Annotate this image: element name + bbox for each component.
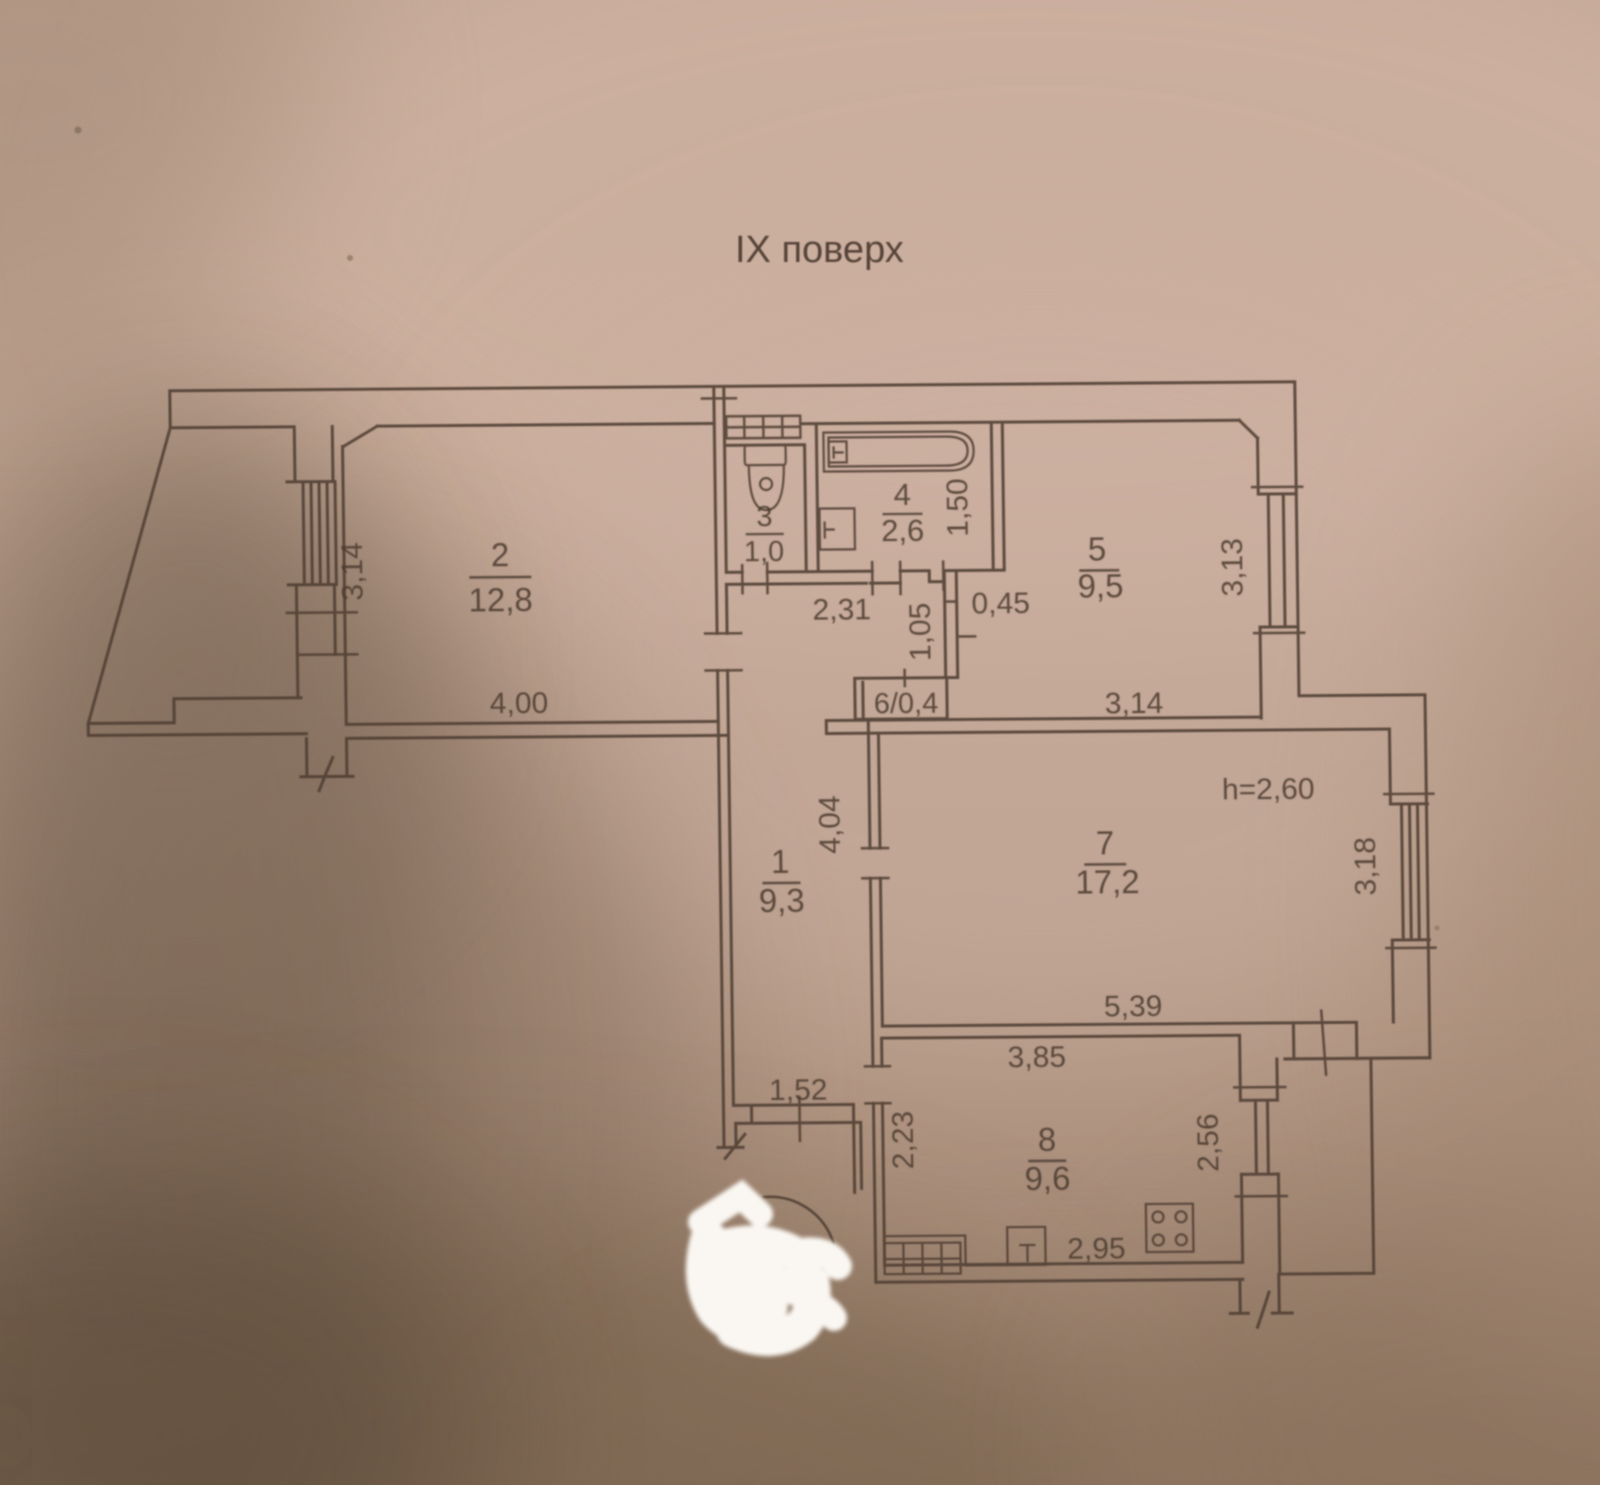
svg-text:0,45: 0,45 [971, 587, 1030, 620]
svg-text:1,52: 1,52 [769, 1074, 828, 1107]
svg-text:17,2: 17,2 [1075, 863, 1140, 901]
svg-text:3,18: 3,18 [1349, 837, 1383, 896]
svg-text:4,00: 4,00 [490, 687, 549, 720]
svg-text:2,23: 2,23 [887, 1111, 921, 1170]
svg-text:3,85: 3,85 [1007, 1041, 1066, 1074]
svg-text:3: 3 [756, 501, 773, 533]
svg-text:1,50: 1,50 [941, 478, 975, 537]
svg-text:1: 1 [771, 843, 790, 880]
svg-text:3,14: 3,14 [1105, 687, 1164, 720]
svg-text:3,13: 3,13 [1216, 538, 1250, 597]
svg-text:1,0: 1,0 [744, 536, 785, 568]
svg-text:9,3: 9,3 [759, 882, 805, 919]
svg-text:2,6: 2,6 [881, 513, 925, 548]
svg-text:2,31: 2,31 [812, 593, 871, 626]
svg-text:5: 5 [1088, 530, 1107, 567]
svg-text:9,6: 9,6 [1024, 1160, 1070, 1197]
svg-text:12,8: 12,8 [468, 581, 533, 619]
svg-text:2: 2 [491, 536, 510, 573]
svg-text:2,95: 2,95 [1067, 1232, 1126, 1265]
svg-text:ІХ поверх: ІХ поверх [735, 229, 904, 271]
svg-text:h=2,60: h=2,60 [1222, 773, 1315, 807]
svg-text:9,5: 9,5 [1077, 567, 1123, 604]
svg-text:3,14: 3,14 [336, 542, 370, 601]
svg-text:2,56: 2,56 [1192, 1113, 1226, 1172]
svg-text:6/0,4: 6/0,4 [874, 688, 939, 721]
svg-text:7: 7 [1096, 824, 1115, 861]
svg-text:8: 8 [1038, 1121, 1057, 1158]
svg-text:5,39: 5,39 [1104, 990, 1163, 1023]
svg-text:4,04: 4,04 [813, 795, 847, 854]
svg-text:4: 4 [893, 477, 911, 512]
svg-text:1,05: 1,05 [904, 603, 938, 662]
